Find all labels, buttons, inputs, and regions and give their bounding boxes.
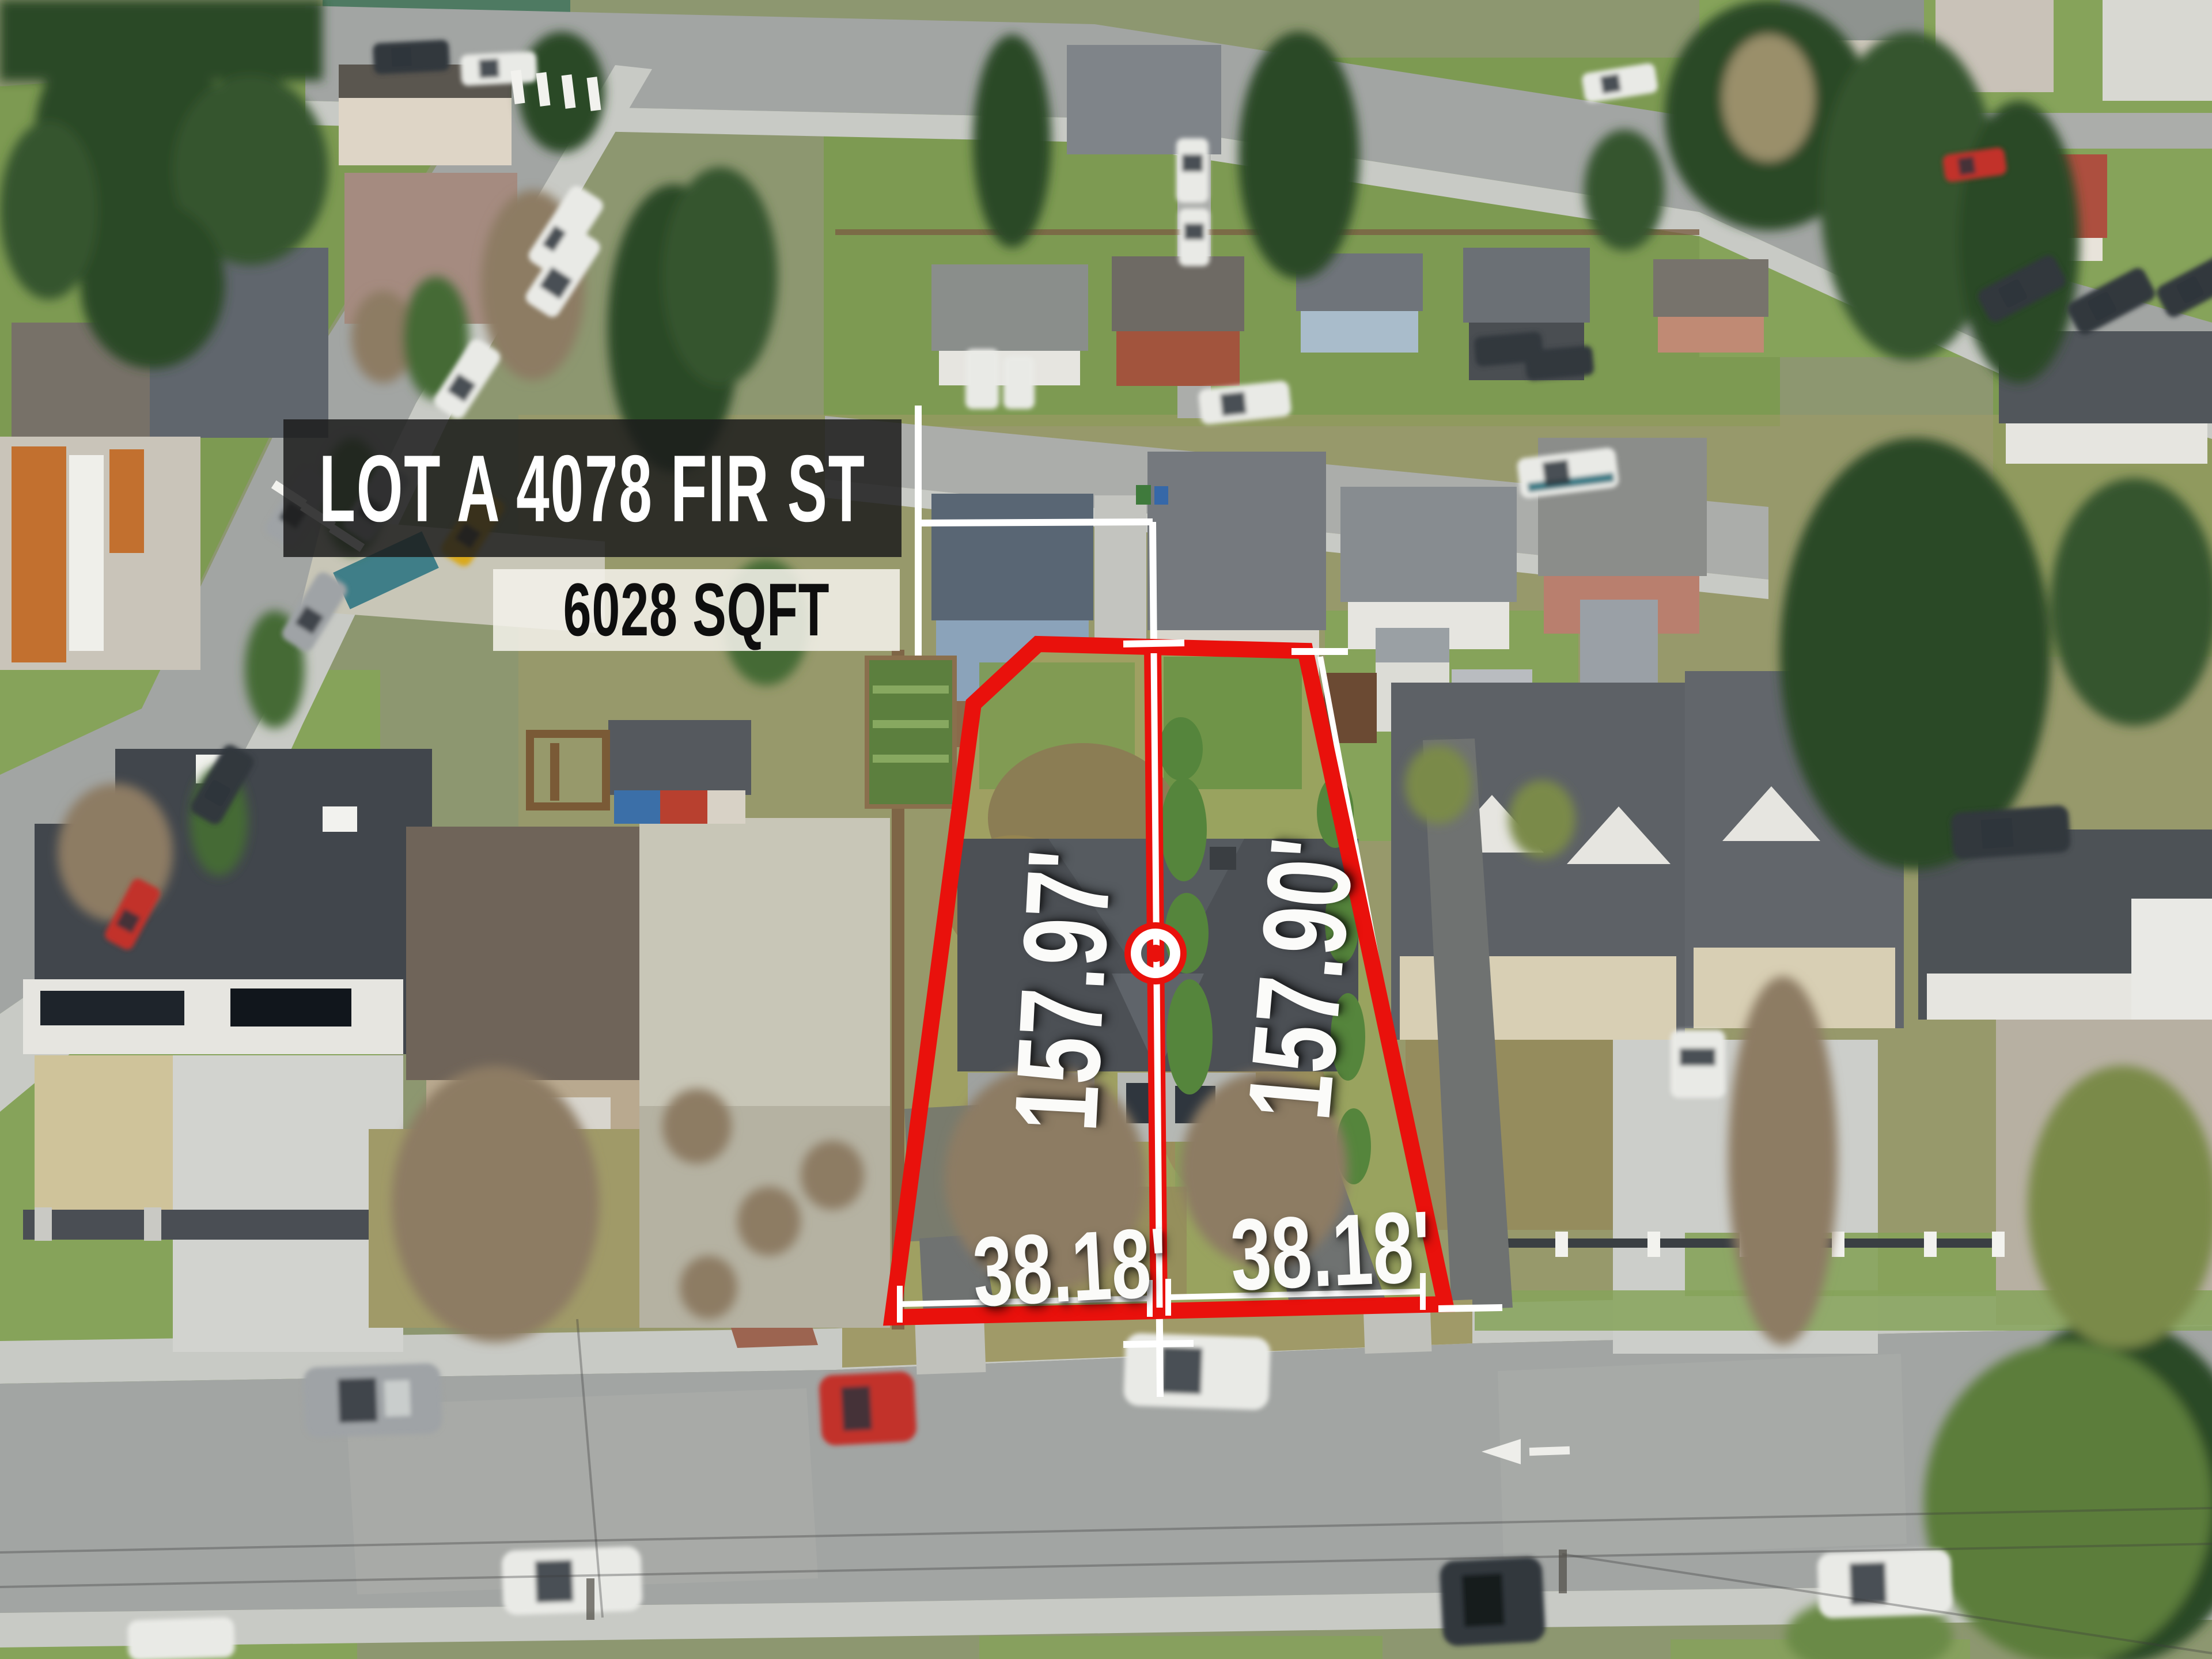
tick-divider-bottom [1123,1343,1194,1344]
car [1003,356,1035,409]
tick-southeast [1438,1308,1502,1309]
house [1653,259,1768,353]
truck [1671,1030,1725,1098]
survey-line-horizontal [918,522,1153,523]
tick-divider-top [1123,643,1184,644]
car [127,1617,235,1659]
car [1950,805,2071,860]
car [501,1546,643,1615]
mural-shack [608,720,751,824]
car [965,349,999,409]
paver-path [35,1055,190,1210]
address-banner-text: LOT A 4078 FIR ST [319,434,866,543]
measurement-label-left-depth: 157.97' [988,847,1138,1135]
van [1176,138,1209,203]
car [303,1363,442,1438]
car [460,51,538,86]
white-trim-house [1340,487,1517,649]
address-banner: LOT A 4078 FIR ST [283,419,902,557]
aerial-scene [0,0,2212,1659]
measurement-label-left-frontage: 38.18' [970,1205,1170,1329]
bullseye-marker [1128,926,1183,981]
van [1179,209,1210,266]
orange-duplex [0,437,200,670]
house [1112,256,1244,386]
measurement-label-right-frontage: 38.18' [1228,1188,1433,1313]
car [1439,1556,1546,1646]
lot-size-box: 6028 SQFT [493,569,900,651]
car [373,40,450,75]
aerial-listing-photo: LOT A 4078 FIR ST 6028 SQFT 157.97' 157.… [0,0,2212,1659]
garage-building [1067,45,1221,154]
measurement-label-right-depth: 157.90' [1221,834,1380,1125]
house [2103,0,2212,101]
car [1524,345,1594,381]
vegetable-garden [867,658,955,806]
car [819,1371,917,1446]
car [1817,1548,1953,1619]
lot-size-text: 6028 SQFT [563,567,830,653]
